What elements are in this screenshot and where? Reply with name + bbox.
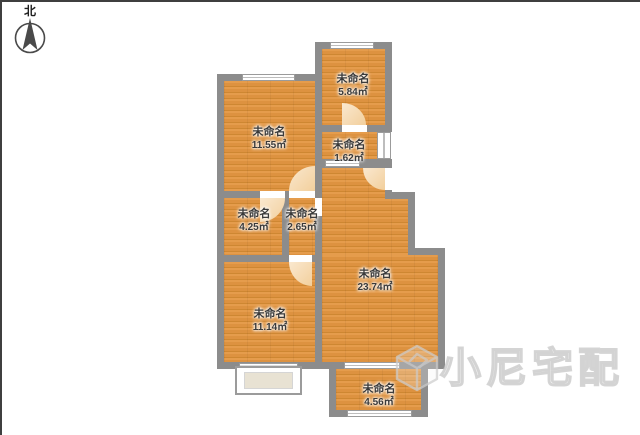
window (347, 410, 412, 417)
room-label: 未命名 23.74㎡ (357, 268, 392, 294)
window (377, 132, 391, 159)
room-area: 11.14㎡ (253, 321, 287, 334)
room-label: 未命名 11.55㎡ (252, 126, 286, 152)
room-name: 未命名 (333, 139, 366, 152)
room-label: 未命名 4.56㎡ (363, 383, 396, 409)
room-area: 11.55㎡ (252, 139, 286, 152)
room-name: 未命名 (252, 126, 286, 139)
wall (329, 362, 336, 417)
door-opening (289, 191, 315, 198)
room-label: 未命名 11.14㎡ (253, 308, 287, 334)
wall (408, 192, 415, 255)
room-area: 4.56㎡ (363, 396, 396, 409)
room-label: 未命名 2.65㎡ (286, 208, 319, 234)
room-name: 未命名 (238, 208, 271, 221)
wall (400, 362, 445, 369)
wall (438, 248, 445, 369)
window (242, 74, 295, 81)
door-opening (385, 168, 392, 190)
watermark-text: 小尼宅配 (440, 345, 624, 391)
room-floor-23-74-b (322, 199, 408, 255)
wall (385, 42, 392, 132)
room-label: 未命名 4.25㎡ (238, 208, 271, 234)
window (330, 42, 374, 49)
compass-north-indicator: 北 (10, 5, 50, 60)
room-name: 未命名 (253, 308, 287, 321)
door-opening (289, 255, 312, 262)
floor-plan: 未命名 11.55㎡ 未命名 5.84㎡ 未命名 1.62㎡ 未命名 4.25㎡… (0, 0, 640, 435)
room-area: 23.74㎡ (357, 281, 392, 294)
room-area: 5.84㎡ (337, 86, 370, 99)
compass-icon (10, 17, 50, 55)
door-opening (342, 125, 367, 132)
compass-north-label: 北 (10, 5, 50, 17)
room-name: 未命名 (363, 383, 396, 396)
room-name: 未命名 (337, 73, 370, 86)
bay-window-sill (244, 372, 293, 389)
room-label: 未命名 1.62㎡ (333, 139, 366, 165)
window (344, 362, 400, 369)
door-opening (260, 191, 285, 198)
room-name: 未命名 (357, 268, 392, 281)
room-area: 2.65㎡ (286, 221, 319, 234)
wall (217, 74, 224, 369)
room-name: 未命名 (286, 208, 319, 221)
room-area: 4.25㎡ (238, 221, 271, 234)
room-label: 未命名 5.84㎡ (337, 73, 370, 99)
room-area: 1.62㎡ (333, 152, 366, 165)
